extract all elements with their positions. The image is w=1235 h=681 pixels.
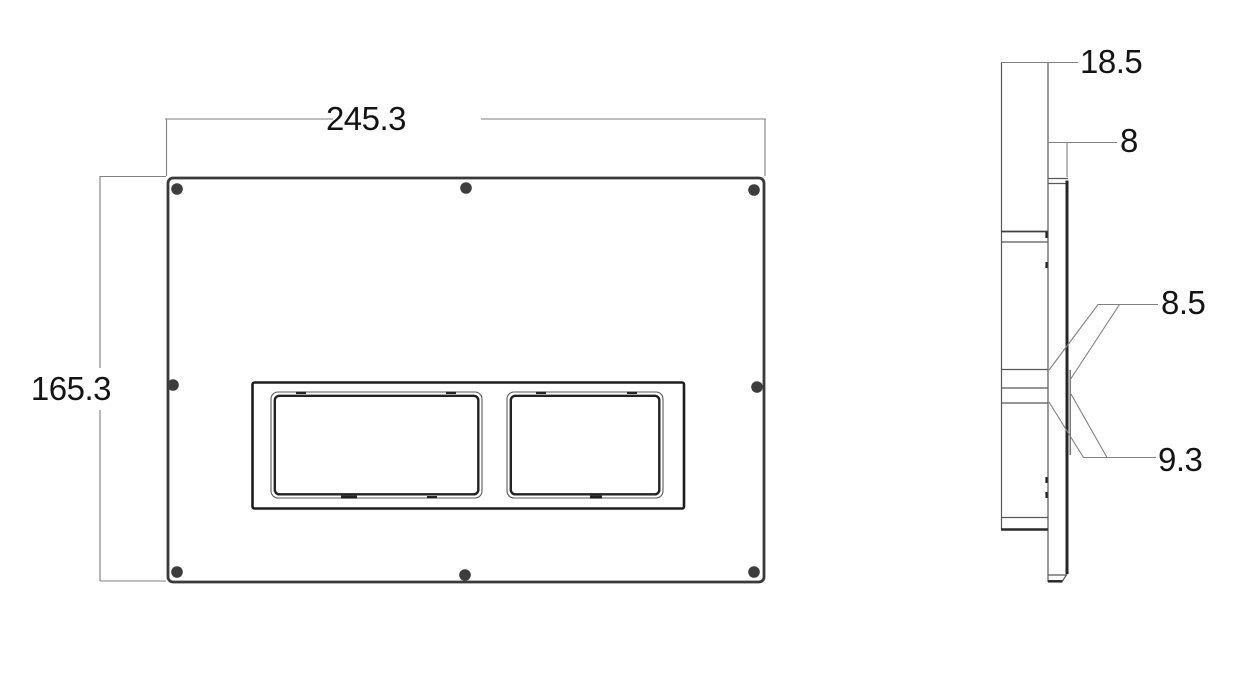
dimension-front-width: 245.3	[165, 100, 766, 176]
width-extension-lines	[167, 119, 766, 176]
screw-hole-dot	[171, 566, 183, 578]
width-dimension-label: 245.3	[326, 100, 406, 137]
screw-hole-dot	[167, 379, 179, 391]
right-flush-button	[507, 392, 663, 498]
dimension-upper-step: 8.5	[1049, 284, 1205, 380]
screw-hole-dot	[748, 566, 760, 578]
upper-step-leader	[1049, 305, 1158, 371]
right-button-outer-edge	[507, 392, 663, 498]
flush-plate-drawing: 245.3 165.3	[0, 0, 1235, 681]
side-view: 18.5 8 8.5 9.3	[1001, 43, 1205, 582]
dimension-front-height: 165.3	[31, 176, 166, 581]
dimension-lower-step: 9.3	[1049, 394, 1202, 478]
upper-step-leader-2	[1070, 305, 1120, 381]
left-button-outer-edge	[271, 392, 482, 498]
left-flush-button	[271, 392, 482, 498]
depth-dimension-label: 18.5	[1080, 43, 1142, 80]
lower-step-leader-2	[1071, 394, 1107, 458]
screw-hole-dot	[460, 182, 472, 194]
body-button-step-lines	[1001, 370, 1048, 404]
screw-hole-dot	[459, 569, 471, 581]
side-plate-profile	[1048, 179, 1070, 582]
dimension-side-depth: 18.5	[1001, 43, 1142, 80]
plate-outline	[168, 178, 764, 582]
upper-step-label: 8.5	[1161, 284, 1205, 321]
side-body-profile	[1001, 62, 1048, 582]
screw-hole-dot	[748, 184, 760, 196]
plate-top-bevel	[1048, 179, 1068, 184]
screw-hole-dot	[751, 381, 763, 393]
screw-hole-dot	[171, 183, 183, 195]
dimension-plate-thickness: 8	[1048, 122, 1138, 177]
technical-drawing-page: 245.3 165.3	[0, 0, 1235, 681]
height-dimension-label: 165.3	[31, 370, 111, 407]
front-view: 245.3 165.3	[31, 100, 766, 582]
thickness-dimension-label: 8	[1120, 122, 1138, 159]
lower-step-label: 9.3	[1158, 441, 1202, 478]
